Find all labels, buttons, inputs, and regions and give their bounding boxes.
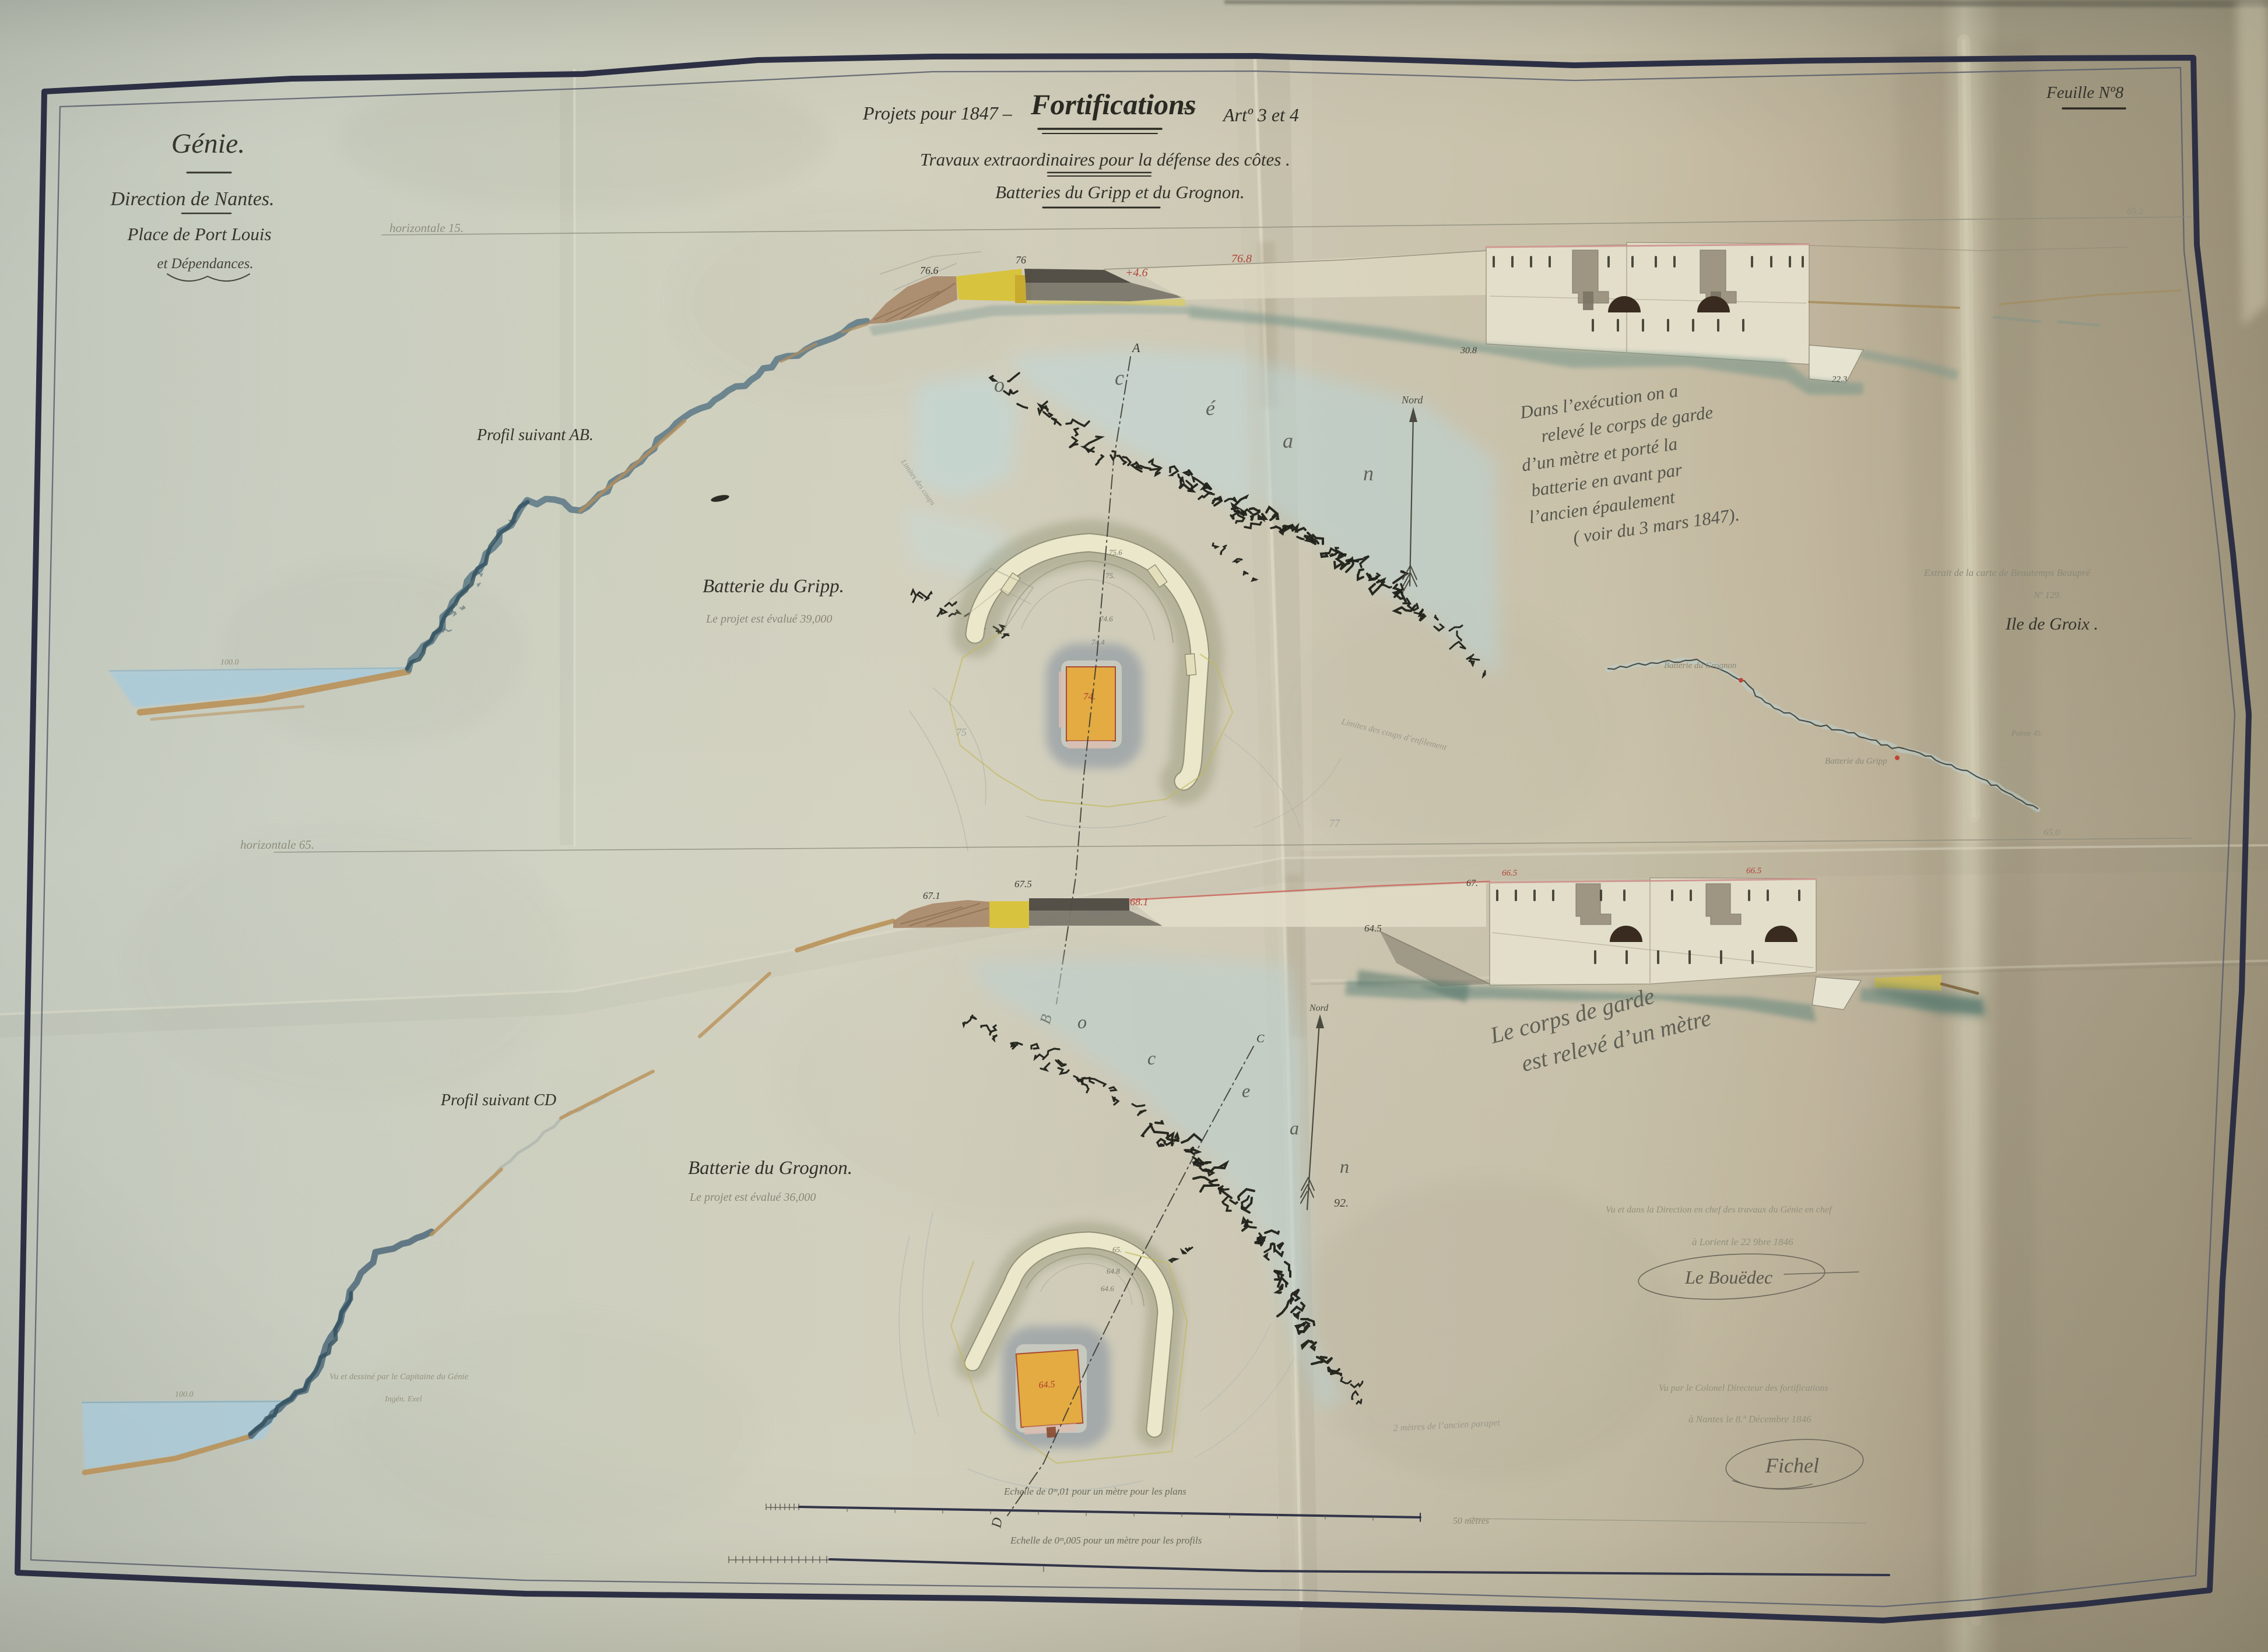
svg-text:67.: 67. <box>1466 878 1478 888</box>
svg-text:Profil suivant CD: Profil suivant CD <box>440 1091 556 1109</box>
svg-text:Le projet est évalué 36,000: Le projet est évalué 36,000 <box>689 1191 816 1204</box>
svg-text:C: C <box>1256 1032 1265 1045</box>
svg-text:Nord: Nord <box>1309 1003 1329 1013</box>
svg-text:Echelle de 0ᵐ,01 pour un mètre: Echelle de 0ᵐ,01 pour un mètre pour les … <box>1003 1486 1186 1497</box>
svg-text:76.8: 76.8 <box>1231 252 1252 265</box>
svg-text:Ingén. Exel: Ingén. Exel <box>384 1395 422 1404</box>
svg-text:67.1: 67.1 <box>923 890 940 901</box>
svg-text:Batterie du Grognon: Batterie du Grognon <box>1664 661 1736 670</box>
svg-text:Vu par le Colonel Directeur de: Vu par le Colonel Directeur des fortific… <box>1659 1383 1828 1393</box>
svg-text:92.: 92. <box>1334 1197 1349 1210</box>
svg-text:67.5: 67.5 <box>1014 878 1032 890</box>
svg-text:Le Bouëdec: Le Bouëdec <box>1684 1267 1772 1288</box>
svg-text:74.: 74. <box>1083 691 1096 702</box>
svg-text:64.8: 64.8 <box>1107 1267 1120 1275</box>
svg-text:Extrait de la carte de Beautem: Extrait de la carte de Beautemps Beaupré <box>1923 567 2091 578</box>
svg-text:75: 75 <box>956 726 967 738</box>
svg-text:Le projet est évalué 39,000: Le projet est évalué 39,000 <box>705 613 832 625</box>
svg-text:Batterie du Gripp: Batterie du Gripp <box>1825 757 1887 766</box>
svg-text:Nº 129.: Nº 129. <box>2033 590 2062 600</box>
svg-text:n: n <box>1363 462 1374 485</box>
svg-text:Batterie du Gripp.: Batterie du Gripp. <box>703 576 844 597</box>
svg-text:64.5: 64.5 <box>1038 1379 1055 1390</box>
svg-text:Place de Port Louis: Place de Port Louis <box>127 224 271 244</box>
svg-text:66.5: 66.5 <box>1502 869 1518 878</box>
svg-text:Pointe 45.: Pointe 45. <box>2011 729 2042 737</box>
svg-text:Fortifications: Fortifications <box>1030 88 1196 121</box>
svg-text:o: o <box>1077 1011 1087 1032</box>
svg-text:76.6: 76.6 <box>920 265 939 276</box>
svg-text:et Dépendances.: et Dépendances. <box>157 256 253 272</box>
svg-text:Projets pour 1847 –: Projets pour 1847 – <box>862 103 1013 124</box>
svg-text:68.1: 68.1 <box>1130 896 1149 908</box>
svg-text:65.: 65. <box>1112 1245 1122 1254</box>
svg-text:66.5: 66.5 <box>1746 866 1762 876</box>
svg-text:Génie.: Génie. <box>171 128 245 159</box>
svg-text:Feuille Nº8: Feuille Nº8 <box>2046 83 2124 102</box>
svg-text:Vu et dessiné par le Capitaine: Vu et dessiné par le Capitaine du Génie <box>329 1372 469 1382</box>
svg-text:77: 77 <box>1329 817 1340 829</box>
svg-text:Travaux extraordinaires pour l: Travaux extraordinaires pour la défense … <box>920 149 1290 170</box>
svg-text:e: e <box>1242 1080 1250 1101</box>
svg-text:Nord: Nord <box>1401 394 1423 406</box>
svg-text:65.2: 65.2 <box>2127 206 2143 216</box>
svg-text:100.0: 100.0 <box>175 1390 194 1399</box>
svg-text:n: n <box>1340 1156 1349 1177</box>
svg-text:100.0: 100.0 <box>220 658 239 667</box>
svg-text:50 mètres: 50 mètres <box>1453 1516 1489 1526</box>
svg-text:Profil suivant AB.: Profil suivant AB. <box>476 426 594 444</box>
svg-text:Artº 3 et 4: Artº 3 et 4 <box>1222 104 1299 125</box>
svg-text:+4.6: +4.6 <box>1125 266 1148 279</box>
svg-text:75.: 75. <box>1105 571 1115 580</box>
svg-text:76: 76 <box>1016 254 1026 266</box>
svg-text:c: c <box>1147 1048 1156 1068</box>
svg-text:a: a <box>1290 1117 1299 1138</box>
svg-text:horizontale 65.: horizontale 65. <box>240 838 314 852</box>
svg-text:horizontale 15.: horizontale 15. <box>389 221 464 235</box>
svg-text:Vu et dans la Direction en che: Vu et dans la Direction en chef des trav… <box>1606 1205 1833 1215</box>
svg-text:Batteries du Gripp et du Grogn: Batteries du Gripp et du Grognon. <box>995 182 1245 202</box>
svg-text:74.6: 74.6 <box>1100 614 1113 623</box>
svg-text:75.6: 75.6 <box>1109 548 1122 557</box>
svg-text:à Nantes le 8.º Décembre 1846: à Nantes le 8.º Décembre 1846 <box>1688 1414 1811 1425</box>
svg-text:Ile de Groix .: Ile de Groix . <box>2005 614 2098 634</box>
svg-text:64.6: 64.6 <box>1101 1284 1114 1293</box>
svg-text:Fichel: Fichel <box>1765 1454 1819 1477</box>
svg-text:65.0: 65.0 <box>2044 828 2060 838</box>
svg-text:–: – <box>1183 93 1196 119</box>
svg-text:Direction de Nantes.: Direction de Nantes. <box>110 188 274 210</box>
svg-text:é: é <box>1206 396 1216 420</box>
svg-text:Echelle de 0ᵐ,005 pour un mètr: Echelle de 0ᵐ,005 pour un mètre pour les… <box>1010 1535 1202 1546</box>
svg-text:30.8: 30.8 <box>1460 346 1477 356</box>
svg-text:64.5: 64.5 <box>1364 923 1382 934</box>
svg-text:o: o <box>994 373 1005 396</box>
svg-text:Batterie du Grognon.: Batterie du Grognon. <box>688 1158 852 1179</box>
svg-text:à Lorient le 22 9bre 1846: à Lorient le 22 9bre 1846 <box>1692 1236 1793 1247</box>
svg-text:A: A <box>1131 340 1140 355</box>
svg-text:c: c <box>1115 366 1124 389</box>
svg-text:a: a <box>1283 429 1293 452</box>
